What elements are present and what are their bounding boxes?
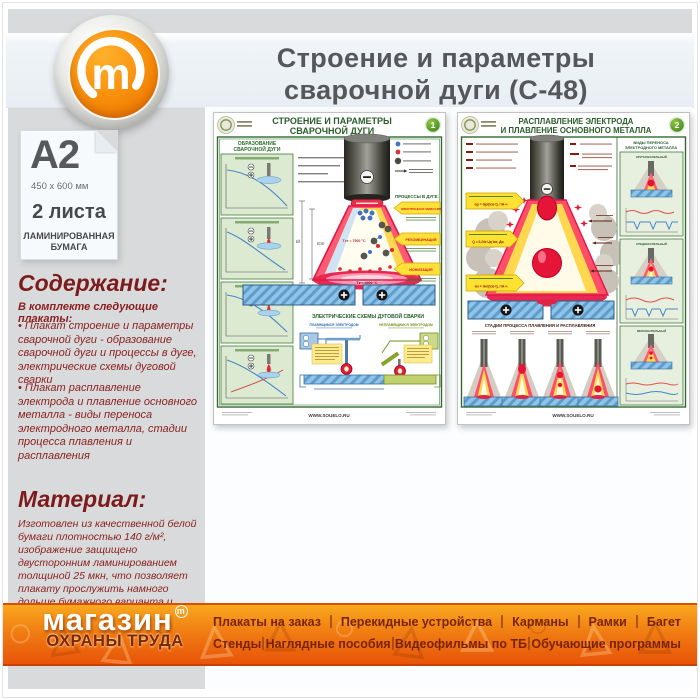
footer-brand-logo[interactable]: магазинm ОХРАНЫ ТРУДА bbox=[20, 605, 210, 651]
svg-text:ℓст: ℓст bbox=[316, 241, 325, 246]
menu-item-training-programs[interactable]: Обучающие программы bbox=[531, 637, 681, 651]
svg-text:НЕПЛАВЯЩИМСЯ ЭЛЕКТРОДОМ: НЕПЛАВЯЩИМСЯ ЭЛЕКТРОДОМ bbox=[379, 323, 433, 327]
product-card: Строение и параметры сварочной дуги (С-4… bbox=[0, 0, 700, 700]
svg-text:Tст ≈ 7500 °C: Tст ≈ 7500 °C bbox=[343, 239, 366, 243]
svg-text:РАСПЛАВЛЕНИЕ ЭЛЕКТРОДА: РАСПЛАВЛЕНИЕ ЭЛЕКТРОДА bbox=[519, 117, 634, 126]
poster-1-workpiece bbox=[243, 285, 435, 305]
poster-2-transfer-column: ВИДЫ ПЕРЕНОСА ЭЛЕКТРОДНОГО МЕТАЛЛА КРУПН… bbox=[620, 140, 683, 405]
menu-separator bbox=[392, 637, 394, 650]
footer-menu: Плакаты на заказ Перекидные устройства К… bbox=[213, 603, 681, 662]
svg-text:ЭЛЕКТРОДНОГО МЕТАЛЛА: ЭЛЕКТРОДНОГО МЕТАЛЛА bbox=[625, 145, 677, 150]
poster-2-artwork: РАСПЛАВЛЕНИЕ ЭЛЕКТРОДА И ПЛАВЛЕНИЕ ОСНОВ… bbox=[458, 113, 689, 424]
svg-text:αн = Gн/(Iсв·t), г/А·ч: αн = Gн/(Iсв·t), г/А·ч bbox=[475, 285, 508, 289]
svg-text:αр = Gр/(Iсв·t), г/А·ч: αр = Gр/(Iсв·t), г/А·ч bbox=[475, 203, 508, 207]
svg-text:И ПЛАВЛЕНИЕ ОСНОВНОГО МЕТАЛЛА: И ПЛАВЛЕНИЕ ОСНОВНОГО МЕТАЛЛА bbox=[501, 126, 652, 135]
svg-text:ЭЛЕКТРОННАЯ ЭМИССИЯ: ЭЛЕКТРОННАЯ ЭМИССИЯ bbox=[401, 207, 442, 211]
contents-heading: Содержание: bbox=[18, 270, 168, 297]
svg-text:Q = 0,24к·Uд·Iсв, Дж: Q = 0,24к·Uд·Iсв, Дж bbox=[472, 240, 504, 244]
svg-text:Tк ≈ 4000 °C: Tк ≈ 4000 °C bbox=[357, 281, 378, 285]
svg-text:WWW.SOUELO.RU: WWW.SOUELO.RU bbox=[552, 413, 594, 418]
sheets-label: 2 листа bbox=[21, 201, 117, 224]
menu-separator bbox=[636, 615, 638, 628]
menu-item-flip-devices[interactable]: Перекидные устройства bbox=[341, 615, 492, 629]
store-logo-circle: m bbox=[68, 28, 160, 120]
menu-separator bbox=[578, 615, 580, 628]
poster-1-artwork: СТРОЕНИЕ И ПАРАМЕТРЫ СВАРОЧНОЙ ДУГИ 1 ОБ… bbox=[214, 113, 445, 424]
store-logo[interactable]: m bbox=[55, 15, 169, 129]
menu-item-baguette[interactable]: Багет bbox=[647, 615, 681, 629]
menu-item-pockets[interactable]: Карманы bbox=[512, 615, 568, 629]
poster-1-left-column: ОБРАЗОВАНИЕ СВАРОЧНОЙ ДУГИ bbox=[221, 141, 293, 404]
contents-item-2: • Плакат расплавление электрода и плавле… bbox=[18, 382, 198, 463]
svg-text:РЕКОМБИНАЦИЯ: РЕКОМБИНАЦИЯ bbox=[406, 238, 437, 242]
svg-text:ЭЛЕКТРИЧЕСКИЕ СХЕМЫ ДУГОВОЙ СВ: ЭЛЕКТРИЧЕСКИЕ СХЕМЫ ДУГОВОЙ СВАРКИ bbox=[312, 312, 424, 320]
menu-item-stands[interactable]: Стенды bbox=[213, 637, 261, 651]
svg-text:СРЕДНЕКАПЕЛЬНЫЙ: СРЕДНЕКАПЕЛЬНЫЙ bbox=[636, 242, 667, 246]
paper-type-label: ЛАМИНИРОВАННАЯ БУМАГА bbox=[21, 231, 117, 253]
svg-text:ПЛАВЯЩИМСЯ ЭЛЕКТРОДОМ: ПЛАВЯЩИМСЯ ЭЛЕКТРОДОМ bbox=[309, 323, 358, 327]
menu-separator bbox=[330, 615, 332, 628]
menu-item-safety-videos[interactable]: Видеофильмы по ТБ bbox=[395, 637, 527, 651]
brand-subtitle: ОХРАНЫ ТРУДА bbox=[20, 632, 210, 651]
menu-item-visual-aids[interactable]: Наглядные пособия bbox=[266, 637, 391, 651]
svg-text:ℓд: ℓд bbox=[295, 239, 300, 244]
footer-menu-row-1: Плакаты на заказ Перекидные устройства К… bbox=[213, 615, 681, 629]
svg-text:СВАРОЧНОЙ ДУГИ: СВАРОЧНОЙ ДУГИ bbox=[234, 145, 281, 153]
registered-mark-icon: m bbox=[175, 605, 188, 618]
svg-text:ИОНИЗАЦИЯ: ИОНИЗАЦИЯ bbox=[409, 268, 433, 272]
paper-fold-shadow bbox=[96, 130, 118, 152]
size-label: 450 x 600 мм bbox=[31, 181, 88, 192]
poster-2-electrode bbox=[530, 135, 564, 200]
page-title-line2: сварочной дуги (С-48) bbox=[185, 74, 687, 106]
svg-text:ПРОЦЕССЫ В ДУГЕ:: ПРОЦЕССЫ В ДУГЕ: bbox=[395, 194, 439, 199]
footer-menu-row-2: Стенды Наглядные пособия Видеофильмы по … bbox=[213, 637, 681, 651]
format-label: A2 bbox=[30, 133, 79, 178]
poster-1-electrode bbox=[344, 134, 390, 202]
poster-2-workpiece bbox=[468, 299, 614, 319]
svg-text:КРУПНОКАПЕЛЬНЫЙ: КРУПНОКАПЕЛЬНЫЙ bbox=[636, 155, 667, 159]
brand-name: магазинm bbox=[20, 605, 210, 635]
menu-separator bbox=[262, 637, 264, 650]
menu-separator bbox=[528, 637, 530, 650]
svg-text:WWW.SOUELO.RU: WWW.SOUELO.RU bbox=[308, 413, 350, 418]
contents-item-1: • Плакат строение и параметры сварочной … bbox=[18, 320, 198, 388]
svg-text:МЕЛКОКАПЕЛЬНЫЙ: МЕЛКОКАПЕЛЬНЫЙ bbox=[637, 329, 666, 333]
svg-text:СТРОЕНИЕ И ПАРАМЕТРЫ: СТРОЕНИЕ И ПАРАМЕТРЫ bbox=[272, 116, 392, 126]
page-title: Строение и параметры сварочной дуги (С-4… bbox=[185, 42, 687, 106]
menu-item-frames[interactable]: Рамки bbox=[589, 615, 627, 629]
svg-text:1: 1 bbox=[431, 120, 436, 130]
material-heading: Материал: bbox=[18, 486, 146, 513]
poster-thumbnail-2[interactable]: РАСПЛАВЛЕНИЕ ЭЛЕКТРОДА И ПЛАВЛЕНИЕ ОСНОВ… bbox=[457, 112, 690, 425]
menu-separator bbox=[501, 615, 503, 628]
page-title-line1: Строение и параметры bbox=[185, 42, 687, 74]
poster-2-formula-arrows: αр = Gр/(Iсв·t), г/А·ч Q = 0,24к·Uд·Iсв,… bbox=[466, 193, 524, 291]
m-monogram-icon: m bbox=[70, 30, 154, 114]
svg-text:2: 2 bbox=[675, 120, 680, 130]
format-badge: A2 450 x 600 мм 2 листа ЛАМИНИРОВАННАЯ Б… bbox=[20, 130, 118, 260]
svg-text:m: m bbox=[91, 50, 130, 99]
menu-item-posters-on-order[interactable]: Плакаты на заказ bbox=[213, 615, 321, 629]
poster-thumbnail-1[interactable]: СТРОЕНИЕ И ПАРАМЕТРЫ СВАРОЧНОЙ ДУГИ 1 ОБ… bbox=[213, 112, 446, 425]
svg-text:СТАДИИ ПРОЦЕССА ПЛАВЛЕНИЯ И РА: СТАДИИ ПРОЦЕССА ПЛАВЛЕНИЯ И РАСПЛАВЛЕНИЯ bbox=[485, 323, 596, 328]
